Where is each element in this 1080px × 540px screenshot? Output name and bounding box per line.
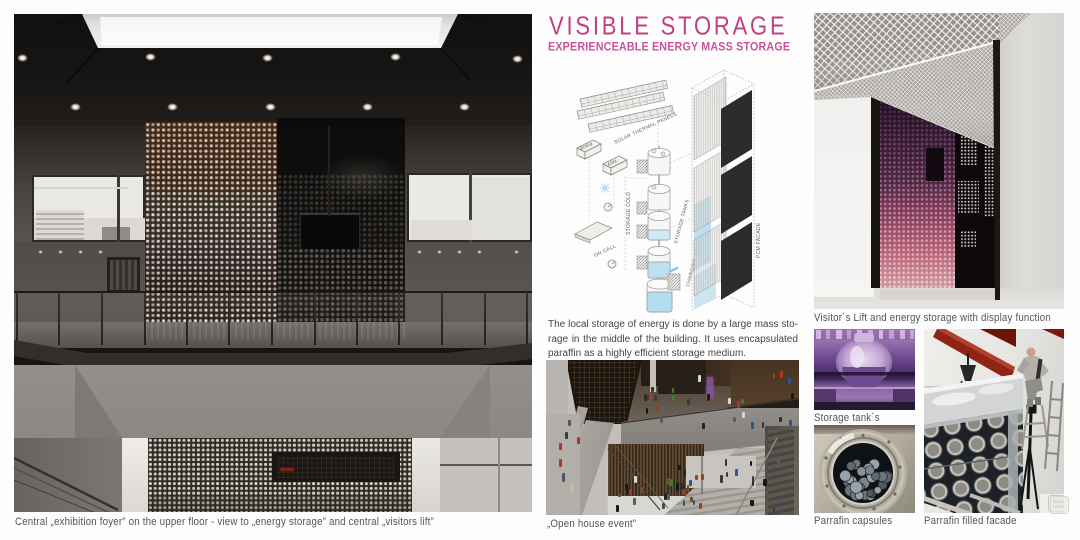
svg-text:STORAGE COLD: STORAGE COLD [626, 192, 632, 235]
svg-text:PCM FACADE: PCM FACADE [756, 222, 762, 258]
svg-text:ON CALL: ON CALL [593, 243, 617, 258]
svg-text:STORAGE TANKS: STORAGE TANKS [673, 198, 691, 244]
